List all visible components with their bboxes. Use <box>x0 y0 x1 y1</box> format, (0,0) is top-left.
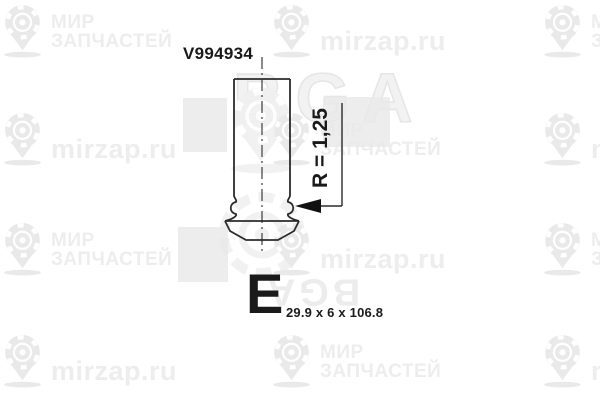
part-number-label: V994934 <box>183 44 253 64</box>
valve-product-image: BGA BGA МИРЗАПЧАСТЕЙ <box>0 0 600 400</box>
valve-technical-drawing <box>0 0 600 400</box>
radius-dimension-label: R = 1,25 <box>309 108 333 188</box>
valve-left-outline <box>225 79 236 221</box>
valve-size-class-letter: E <box>246 266 283 322</box>
valve-right-outline <box>288 79 299 221</box>
overall-dimensions-label: 29.9 x 6 x 106.8 <box>286 305 383 320</box>
radius-arrow <box>295 199 321 213</box>
